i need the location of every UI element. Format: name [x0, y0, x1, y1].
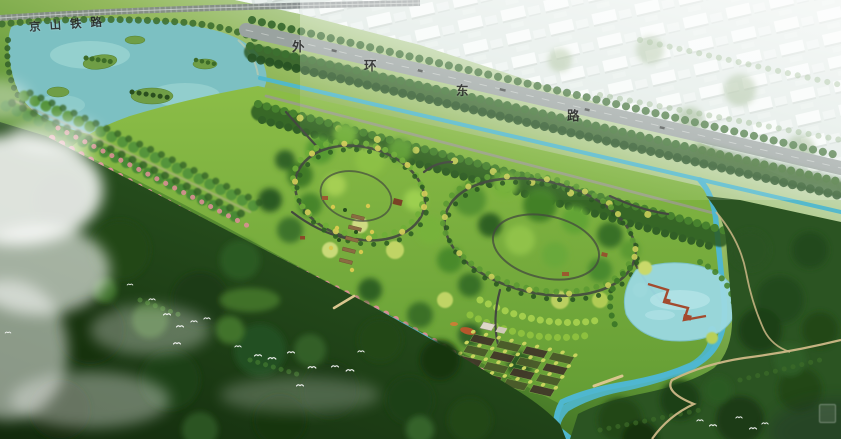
ring-road-label-char: 东	[456, 80, 469, 99]
ring-road-label-char: 环	[364, 55, 377, 74]
ring-road-label-char: 路	[567, 105, 580, 124]
city-haze	[300, 0, 841, 200]
watermark-seal	[819, 404, 836, 423]
aerial-rendering: 京山铁路 外 环 东 路	[0, 0, 841, 439]
aerial-scene	[0, 0, 841, 439]
ring-road-label-char: 外	[292, 36, 305, 55]
